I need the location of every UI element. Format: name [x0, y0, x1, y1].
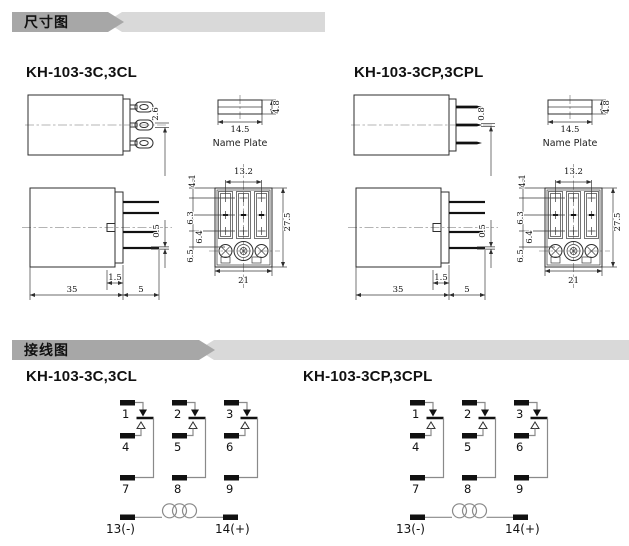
- wiring-diagram-3c: 1 4 7 2 5 8 3: [100, 392, 300, 542]
- dim-body-width: 35: [393, 285, 404, 295]
- dim-row4: 6.5: [186, 249, 196, 263]
- wiring-banner-tail: [198, 340, 629, 360]
- dimensions-banner: 尺寸图: [12, 12, 124, 32]
- wiring-banner-label: 接线图: [12, 342, 69, 358]
- relay-side-view-3cp: 0.8: [351, 88, 501, 193]
- wiring-title-3c: KH-103-3C,3CL: [26, 368, 137, 385]
- dim-pitch: 13.2: [564, 167, 583, 177]
- name-plate-view-left: 14.5 4.8 Name Plate: [198, 92, 293, 154]
- dim-plate-thickness: 4.8: [272, 100, 282, 114]
- dim-socket-width: 21: [238, 276, 249, 286]
- pin-layout-view-left: 13.2 4.1 6.3 6.4 6.5 27.5 21: [187, 160, 299, 292]
- model-title-3c: KH-103-3C,3CL: [26, 64, 137, 81]
- svg-text:13(-): 13(-): [106, 522, 135, 536]
- svg-text:7: 7: [412, 482, 419, 496]
- svg-text:14(+): 14(+): [505, 522, 540, 536]
- svg-text:9: 9: [516, 482, 523, 496]
- dim-step: 1.5: [434, 273, 448, 283]
- dim-pin-length: 5: [464, 285, 469, 295]
- svg-text:1: 1: [412, 407, 419, 421]
- relay-side-view-3c: 2.6: [25, 88, 175, 193]
- relay-bottom-side-view-left: 0.5 1.5 35 5: [20, 180, 180, 306]
- svg-text:13(-): 13(-): [396, 522, 425, 536]
- dim-socket-width: 21: [568, 276, 579, 286]
- dimensions-banner-label: 尺寸图: [12, 14, 69, 30]
- dim-pitch: 13.2: [234, 167, 253, 177]
- dim-pin-length: 5: [138, 285, 143, 295]
- pole-1: 1 4 7: [410, 400, 444, 496]
- svg-text:2: 2: [464, 407, 471, 421]
- dim-row1: 4.1: [188, 174, 198, 188]
- datasheet-page: 尺寸图 KH-103-3C,3CL KH-103-3CP,3CPL 2.6 14…: [0, 0, 629, 546]
- dim-row1: 4.1: [518, 174, 528, 188]
- dim-socket-height: 27.5: [613, 213, 623, 232]
- svg-text:14(+): 14(+): [215, 522, 250, 536]
- svg-text:6: 6: [516, 440, 523, 454]
- pole-2: 2 5 8: [172, 400, 206, 496]
- dim-step: 1.5: [108, 273, 122, 283]
- dimensions-banner-tail: [106, 12, 325, 32]
- dim-row3: 6.4: [195, 230, 205, 244]
- dim-row3: 6.4: [525, 230, 535, 244]
- name-plate-label: Name Plate: [543, 138, 598, 149]
- pole-3: 3 6 9: [514, 400, 548, 496]
- dim-body-width: 35: [67, 285, 78, 295]
- svg-text:3: 3: [516, 407, 523, 421]
- dim-pin-side-thickness: 0.5: [478, 224, 488, 238]
- dim-row4: 6.5: [516, 249, 526, 263]
- dim-pin-side-thickness: 0.5: [152, 224, 162, 238]
- dim-plate-width: 14.5: [231, 125, 250, 135]
- svg-text:9: 9: [226, 482, 233, 496]
- dim-plate-width: 14.5: [561, 125, 580, 135]
- svg-text:8: 8: [464, 482, 471, 496]
- svg-text:8: 8: [174, 482, 181, 496]
- wiring-banner: 接线图: [12, 340, 215, 360]
- dim-pin-thickness-3cp: 0.8: [477, 107, 487, 121]
- dim-plate-thickness: 4.8: [602, 100, 612, 114]
- model-title-3cp: KH-103-3CP,3CPL: [354, 64, 483, 81]
- svg-text:1: 1: [122, 407, 129, 421]
- svg-text:6: 6: [226, 440, 233, 454]
- svg-text:4: 4: [412, 440, 419, 454]
- svg-text:7: 7: [122, 482, 129, 496]
- coil: 13(-) 14(+): [106, 504, 250, 536]
- pin-layout-view-right: 13.2 4.1 6.3 6.4 6.5 27.5 21: [517, 160, 629, 292]
- name-plate-label: Name Plate: [213, 138, 268, 149]
- svg-text:2: 2: [174, 407, 181, 421]
- relay-bottom-side-view-right: 0.5 1.5 35 5: [346, 180, 506, 306]
- svg-text:5: 5: [464, 440, 471, 454]
- dim-row2: 6.3: [186, 211, 196, 225]
- svg-text:5: 5: [174, 440, 181, 454]
- wiring-title-3cp: KH-103-3CP,3CPL: [303, 368, 432, 385]
- pole-3: 3 6 9: [224, 400, 258, 496]
- dim-row2: 6.3: [516, 211, 526, 225]
- svg-text:3: 3: [226, 407, 233, 421]
- dim-pin-thickness-3c: 2.6: [151, 107, 161, 121]
- name-plate-view-right: 14.5 4.8 Name Plate: [528, 92, 623, 154]
- pole-1: 1 4 7: [120, 400, 154, 496]
- wiring-diagram-3cp: 1 4 7 2 5 8 3: [390, 392, 590, 542]
- svg-text:4: 4: [122, 440, 129, 454]
- pole-2: 2 5 8: [462, 400, 496, 496]
- coil: 13(-) 14(+): [396, 504, 540, 536]
- dim-socket-height: 27.5: [283, 213, 293, 232]
